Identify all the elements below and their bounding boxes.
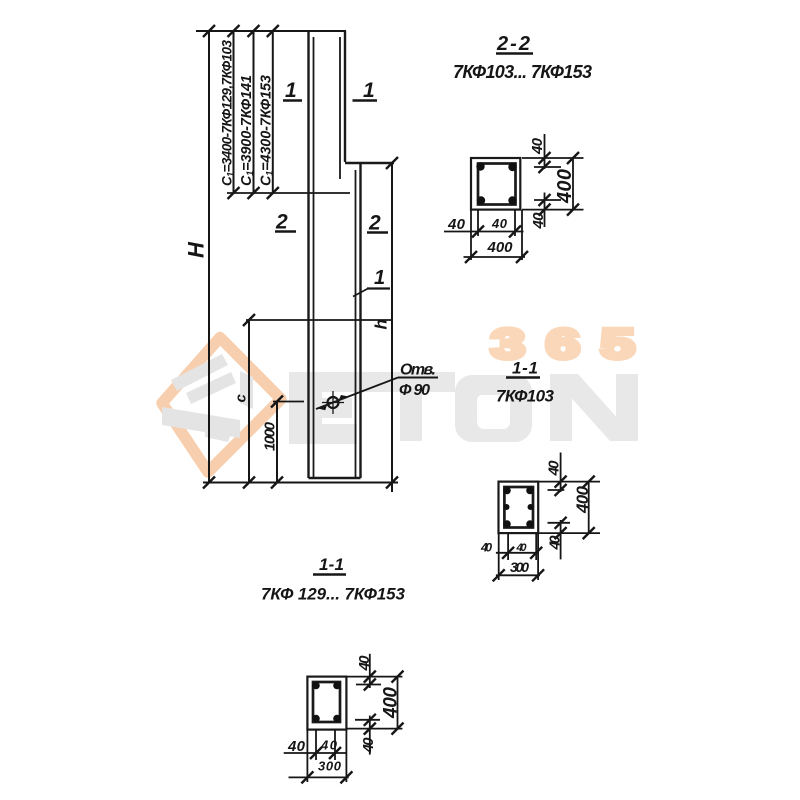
svg-text:1-1: 1-1 (319, 555, 344, 574)
svg-text:40: 40 (287, 738, 306, 755)
svg-text:300: 300 (318, 759, 342, 774)
svg-text:40: 40 (447, 216, 466, 233)
svg-text:400: 400 (487, 239, 514, 256)
svg-text:40: 40 (356, 655, 373, 672)
svg-text:С1=3900-7КФ141: С1=3900-7КФ141 (239, 75, 255, 186)
svg-text:2: 2 (368, 212, 381, 235)
svg-text:Ф 90: Ф 90 (399, 382, 430, 399)
svg-text:40: 40 (516, 542, 528, 554)
svg-text:1: 1 (374, 267, 385, 289)
svg-text:С1=3400-7КФ129,7КФ103: С1=3400-7КФ129,7КФ103 (220, 40, 236, 186)
svg-text:40: 40 (547, 535, 564, 551)
svg-text:400: 400 (554, 169, 576, 204)
svg-text:40: 40 (530, 212, 547, 230)
svg-text:7КФ103... 7КФ153: 7КФ103... 7КФ153 (453, 62, 592, 82)
svg-text:1000: 1000 (262, 421, 279, 451)
svg-text:h: h (372, 319, 391, 329)
svg-text:40: 40 (546, 460, 563, 477)
svg-text:с: с (233, 394, 250, 403)
svg-text:400: 400 (381, 687, 402, 719)
svg-text:1-1: 1-1 (512, 359, 538, 378)
svg-text:400: 400 (573, 485, 592, 514)
svg-text:2-2: 2-2 (496, 33, 530, 55)
svg-text:2: 2 (275, 211, 288, 234)
svg-text:1: 1 (363, 79, 375, 102)
svg-text:40: 40 (320, 738, 338, 753)
svg-text:300: 300 (510, 559, 529, 575)
svg-text:40: 40 (529, 137, 546, 155)
svg-text:40: 40 (480, 541, 492, 555)
svg-text:7КФ 129... 7КФ153: 7КФ 129... 7КФ153 (261, 585, 406, 604)
svg-text:Отв.: Отв. (400, 362, 436, 379)
svg-text:40: 40 (360, 737, 377, 754)
svg-text:40: 40 (491, 216, 508, 231)
svg-text:7КФ103: 7КФ103 (496, 387, 555, 406)
svg-text:Н: Н (184, 241, 209, 258)
svg-text:С1=4300-7КФ153: С1=4300-7КФ153 (259, 75, 275, 186)
svg-text:1: 1 (285, 79, 297, 102)
